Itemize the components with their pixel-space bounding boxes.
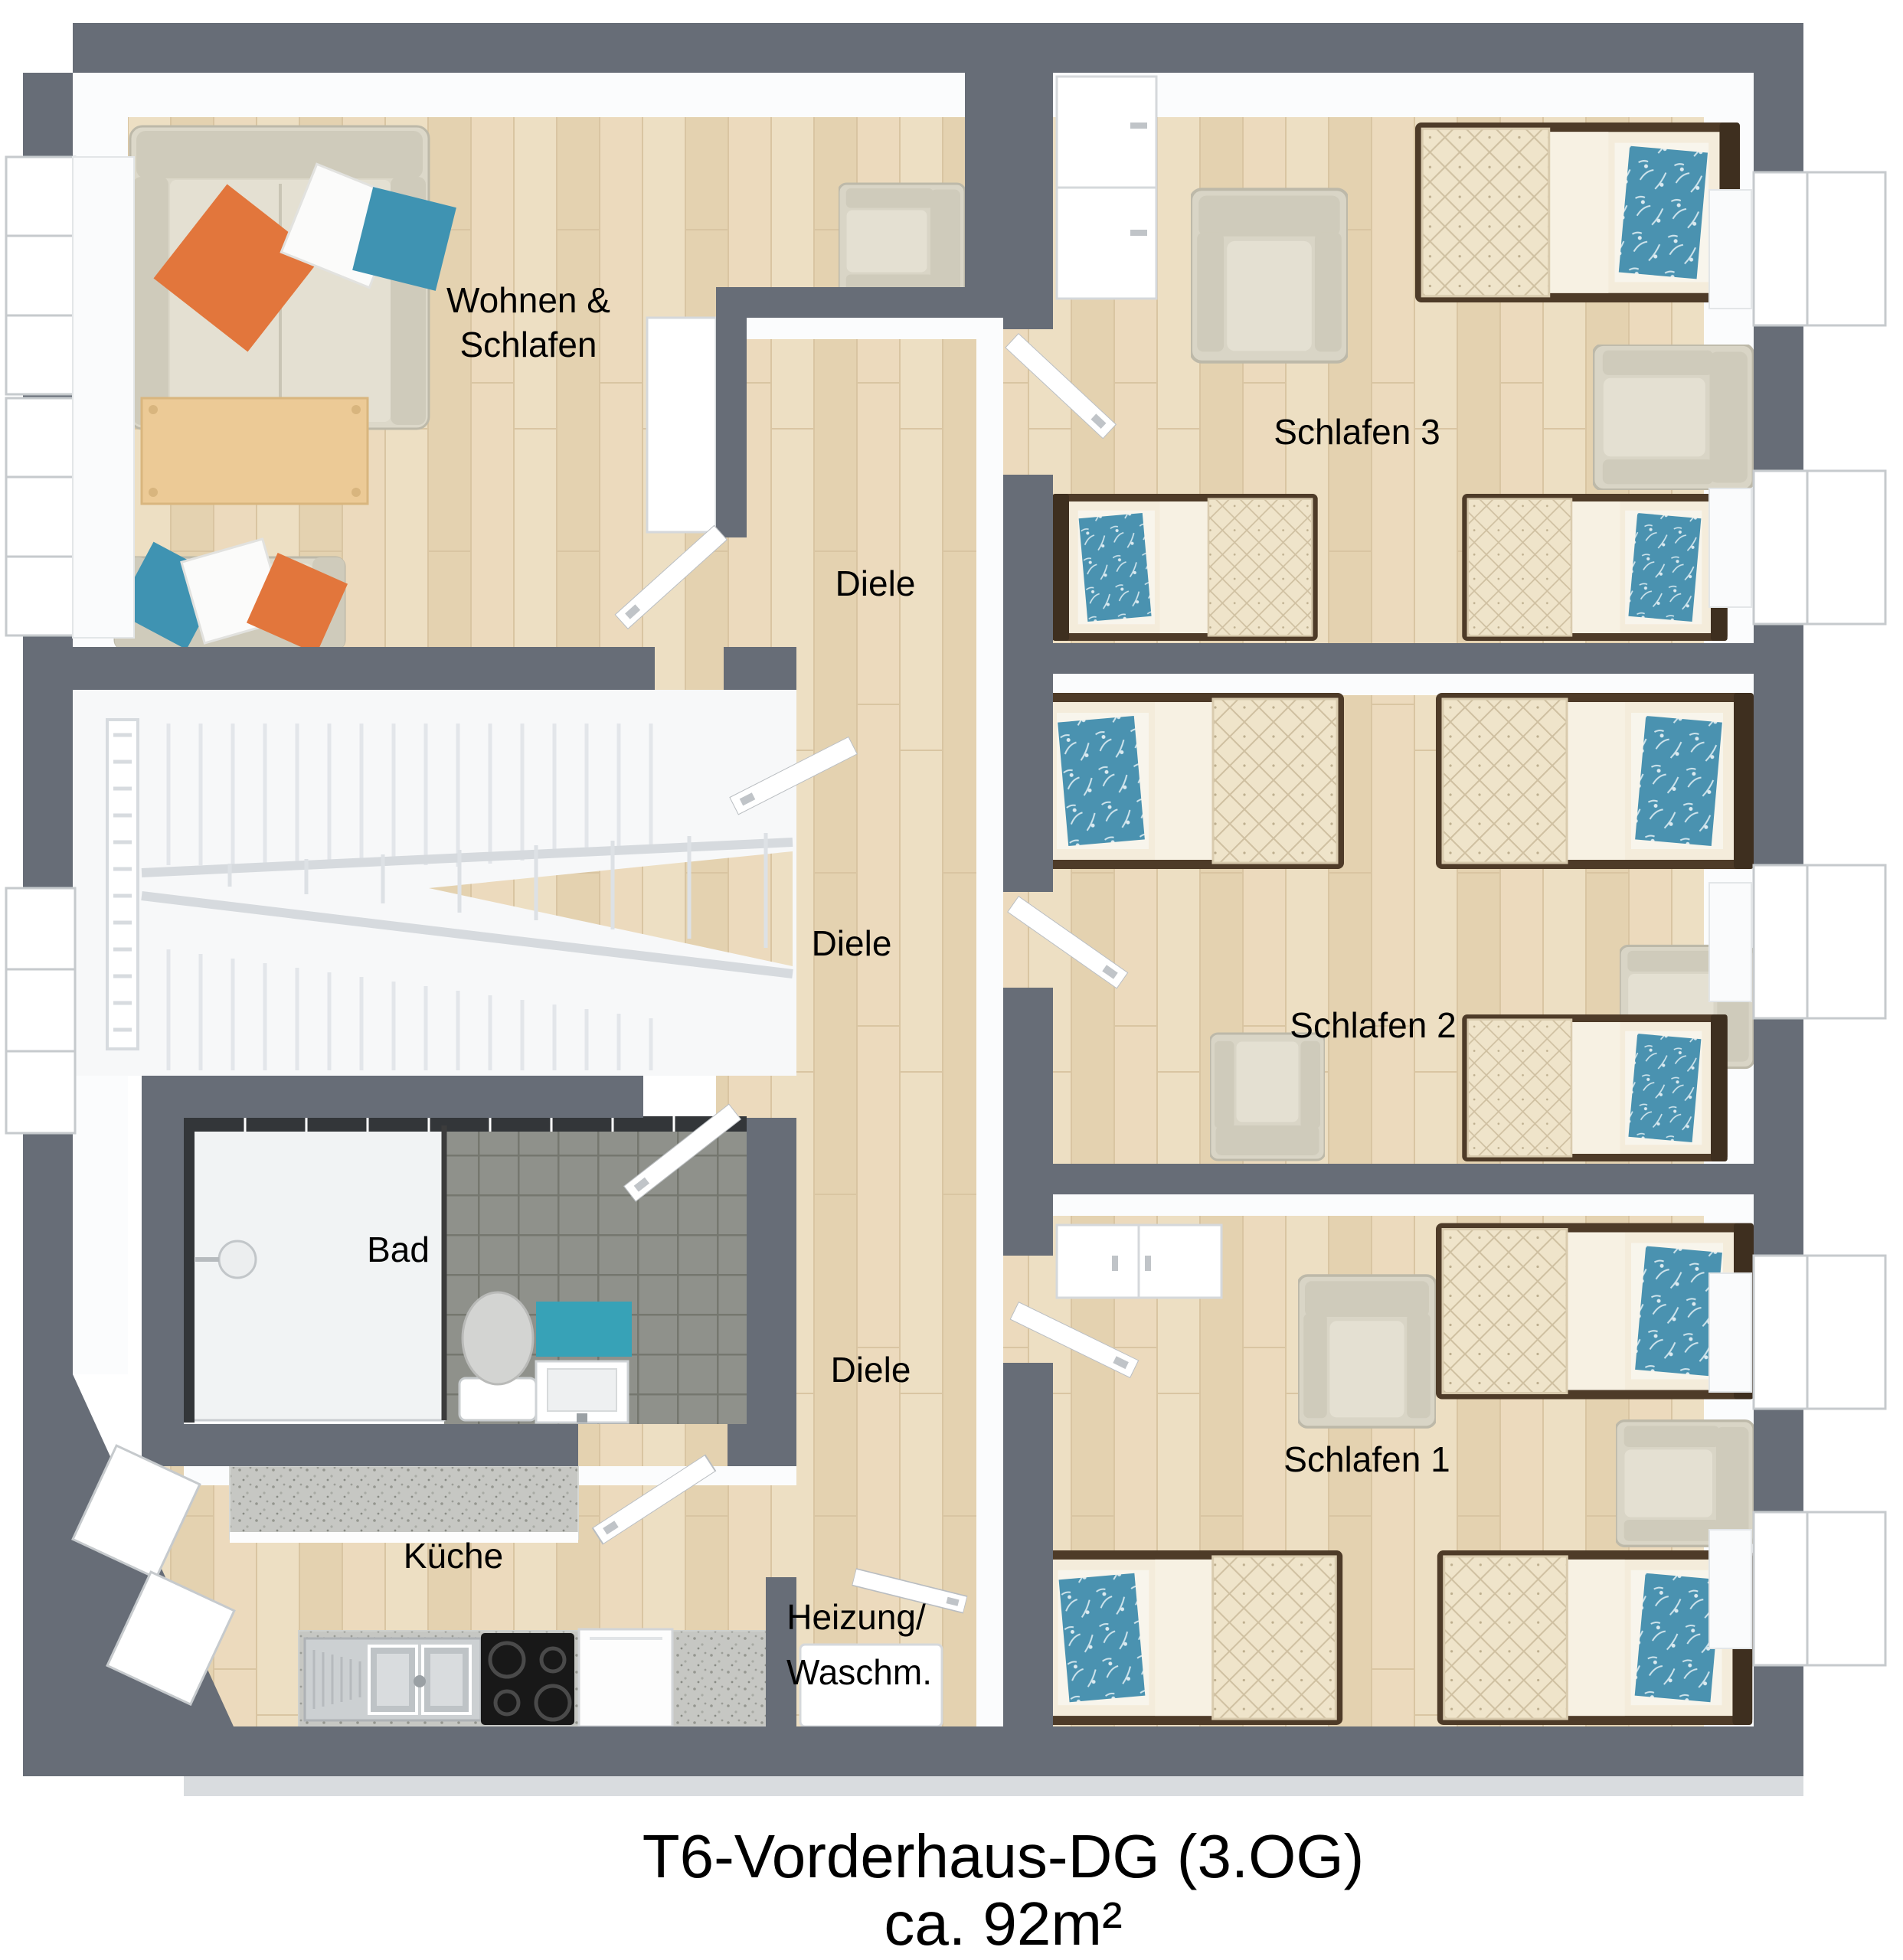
label-bedroom3: Schlafen 3 xyxy=(1274,412,1440,452)
wall-bedroom2-1 xyxy=(1053,1164,1754,1194)
label-kitchen: Küche xyxy=(404,1536,503,1576)
label-utility-line2: Waschm. xyxy=(786,1652,932,1692)
sofa-large xyxy=(130,126,456,429)
sideboard xyxy=(1057,1225,1221,1298)
label-living-line1: Wohnen & xyxy=(446,280,610,320)
plan-title: T6-Vorderhaus-DG (3.OG) ca. 92m² xyxy=(643,1822,1365,1958)
wall-bath-top xyxy=(142,1076,643,1118)
bath-mat xyxy=(536,1302,632,1357)
wall-living-hall xyxy=(716,318,747,537)
window-right-3 xyxy=(1709,865,1885,1018)
sink-basin-left-inner xyxy=(377,1654,409,1706)
label-living-line2: Schlafen xyxy=(459,325,597,364)
armchair xyxy=(1616,1421,1754,1547)
window-right-2 xyxy=(1709,471,1885,624)
armchair xyxy=(1594,345,1754,490)
label-hall-bottom: Diele xyxy=(831,1350,911,1390)
wall-living-bottom xyxy=(73,647,655,690)
window-bench-living xyxy=(73,157,134,638)
shower-side-wall xyxy=(184,1116,195,1423)
wall-bath-bottom xyxy=(142,1424,578,1466)
wall-bedroom3-2 xyxy=(1053,643,1754,674)
window-left-1 xyxy=(6,157,75,394)
bed xyxy=(1462,1014,1727,1161)
kitchen-faucet-icon xyxy=(414,1675,426,1687)
window-right-4 xyxy=(1709,1256,1885,1409)
label-bedroom2: Schlafen 2 xyxy=(1290,1005,1456,1045)
bath-faucet-icon xyxy=(577,1413,587,1423)
armchair xyxy=(1298,1276,1436,1427)
wall-bath-left xyxy=(142,1076,184,1466)
label-bedroom1: Schlafen 1 xyxy=(1283,1439,1450,1479)
wall-corridor-3 xyxy=(1003,988,1053,1256)
armchair xyxy=(1210,1034,1325,1160)
cabinet-living xyxy=(647,318,716,532)
armchair xyxy=(1191,189,1348,362)
bath-wall-tiles xyxy=(191,1116,747,1132)
bed xyxy=(1462,494,1727,641)
wall-corridor-1 xyxy=(1003,73,1053,329)
wall-living-bottom-stub xyxy=(724,647,796,690)
stairwell xyxy=(73,690,796,1076)
bed xyxy=(1028,1550,1342,1725)
bed xyxy=(1436,693,1754,869)
title-line1: T6-Vorderhaus-DG (3.OG) xyxy=(643,1822,1365,1890)
label-hall-mid: Diele xyxy=(812,923,892,963)
coffee-table xyxy=(142,398,368,504)
wall-top xyxy=(73,23,1803,73)
wall-bottom xyxy=(184,1726,1803,1776)
toilet-bowl xyxy=(463,1292,533,1384)
bath-sink-basin xyxy=(548,1369,616,1411)
bed xyxy=(1415,122,1740,302)
wall-corridor-2 xyxy=(1003,475,1053,892)
floorplan-page: Wohnen & Schlafen Diele Diele Diele Bad … xyxy=(0,0,1903,1960)
window-left-2 xyxy=(6,398,75,635)
wall-bath-right xyxy=(747,1118,796,1424)
bed xyxy=(1436,1223,1754,1400)
armchair-living xyxy=(839,184,965,299)
floorplan-canvas: Wohnen & Schlafen Diele Diele Diele Bad … xyxy=(0,0,1903,1960)
window-right-5 xyxy=(1709,1512,1885,1665)
kitchen-fridge xyxy=(579,1629,672,1726)
label-utility-line1: Heizung/ xyxy=(786,1597,926,1637)
sink-basin-right-inner xyxy=(430,1654,463,1706)
bed xyxy=(1437,1550,1752,1725)
stair-railing-left xyxy=(107,720,138,1049)
window-left-3 xyxy=(6,888,75,1133)
label-bath: Bad xyxy=(367,1230,430,1269)
label-hall-top: Diele xyxy=(835,563,916,603)
kitchen-peninsula-counter xyxy=(230,1466,578,1539)
title-line2: ca. 92m² xyxy=(884,1890,1122,1958)
wall-bottom-skirt xyxy=(184,1776,1803,1796)
wall-corridor-4 xyxy=(1003,1363,1053,1726)
bed xyxy=(1026,693,1344,869)
wall-bath-bottom-stub xyxy=(728,1424,796,1466)
bed xyxy=(1052,494,1317,641)
shower-head-icon xyxy=(219,1241,256,1278)
wall-alcove xyxy=(716,287,1015,318)
window-right-1 xyxy=(1709,172,1885,325)
wardrobe xyxy=(1057,77,1156,299)
